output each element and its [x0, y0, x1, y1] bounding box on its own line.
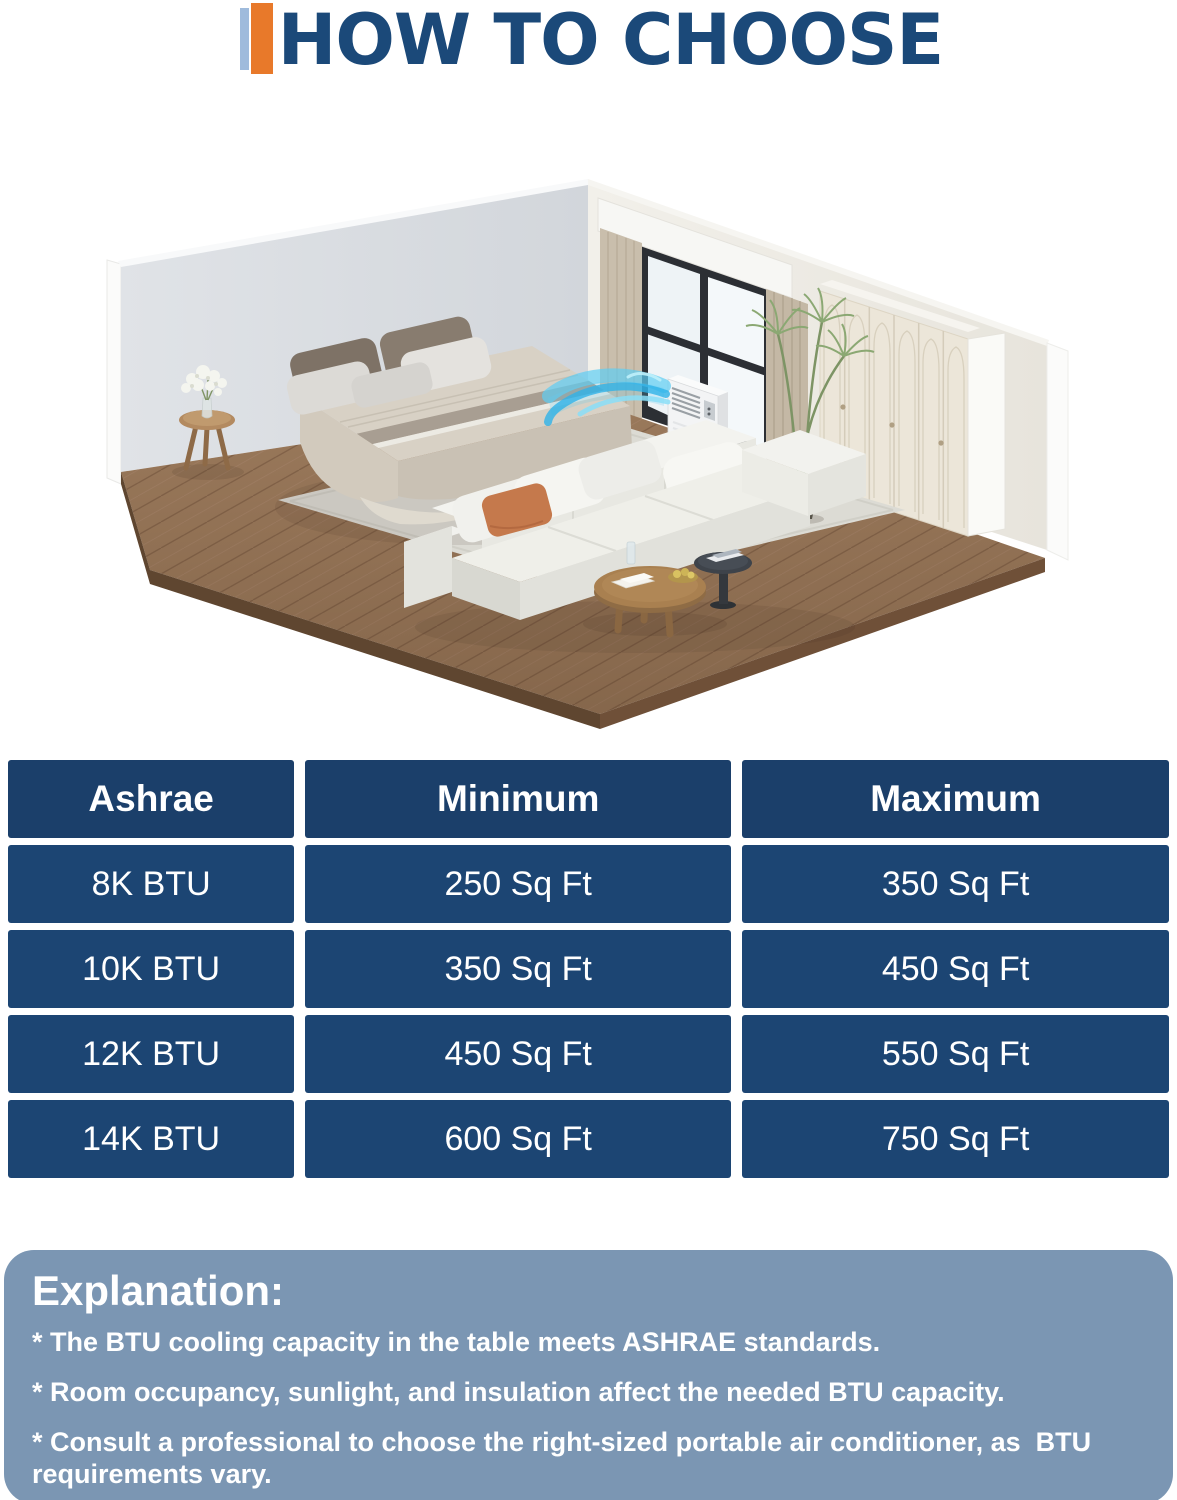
right-wall-edge-cap — [1047, 343, 1068, 560]
table-cell-btu: 10K BTU — [8, 930, 294, 1008]
explanation-heading: Explanation: — [32, 1268, 1133, 1314]
title-accent-orange-bar — [251, 3, 273, 74]
btu-sizing-table: Ashrae Minimum Maximum 8K BTU 250 Sq Ft … — [8, 760, 1169, 1178]
infographic-page: HOW TO CHOOSE — [0, 0, 1177, 1500]
room-illustration — [0, 122, 1177, 742]
title-accent-blue-bar — [240, 8, 249, 70]
explanation-bullet: * Consult a professional to choose the r… — [32, 1426, 1133, 1490]
page-title: HOW TO CHOOSE — [278, 2, 944, 78]
table-header-ashrae: Ashrae — [8, 760, 294, 838]
table-cell-btu: 8K BTU — [8, 845, 294, 923]
table-cell-btu: 12K BTU — [8, 1015, 294, 1093]
explanation-panel: Explanation: * The BTU cooling capacity … — [4, 1250, 1173, 1500]
table-cell-maximum: 550 Sq Ft — [742, 1015, 1169, 1093]
title-block: HOW TO CHOOSE — [0, 0, 1177, 82]
table-cell-btu: 14K BTU — [8, 1100, 294, 1178]
table-cell-maximum: 450 Sq Ft — [742, 930, 1169, 1008]
table-header-minimum: Minimum — [305, 760, 731, 838]
explanation-bullet: * The BTU cooling capacity in the table … — [32, 1326, 1133, 1358]
table-cell-minimum: 250 Sq Ft — [305, 845, 731, 923]
explanation-bullet: * Room occupancy, sunlight, and insulati… — [32, 1376, 1133, 1408]
table-cell-minimum: 600 Sq Ft — [305, 1100, 731, 1178]
table-cell-minimum: 350 Sq Ft — [305, 930, 731, 1008]
left-wall-edge-cap — [107, 260, 121, 484]
table-header-maximum: Maximum — [742, 760, 1169, 838]
table-cell-minimum: 450 Sq Ft — [305, 1015, 731, 1093]
table-cell-maximum: 350 Sq Ft — [742, 845, 1169, 923]
table-cell-maximum: 750 Sq Ft — [742, 1100, 1169, 1178]
drinking-glass — [627, 542, 635, 564]
